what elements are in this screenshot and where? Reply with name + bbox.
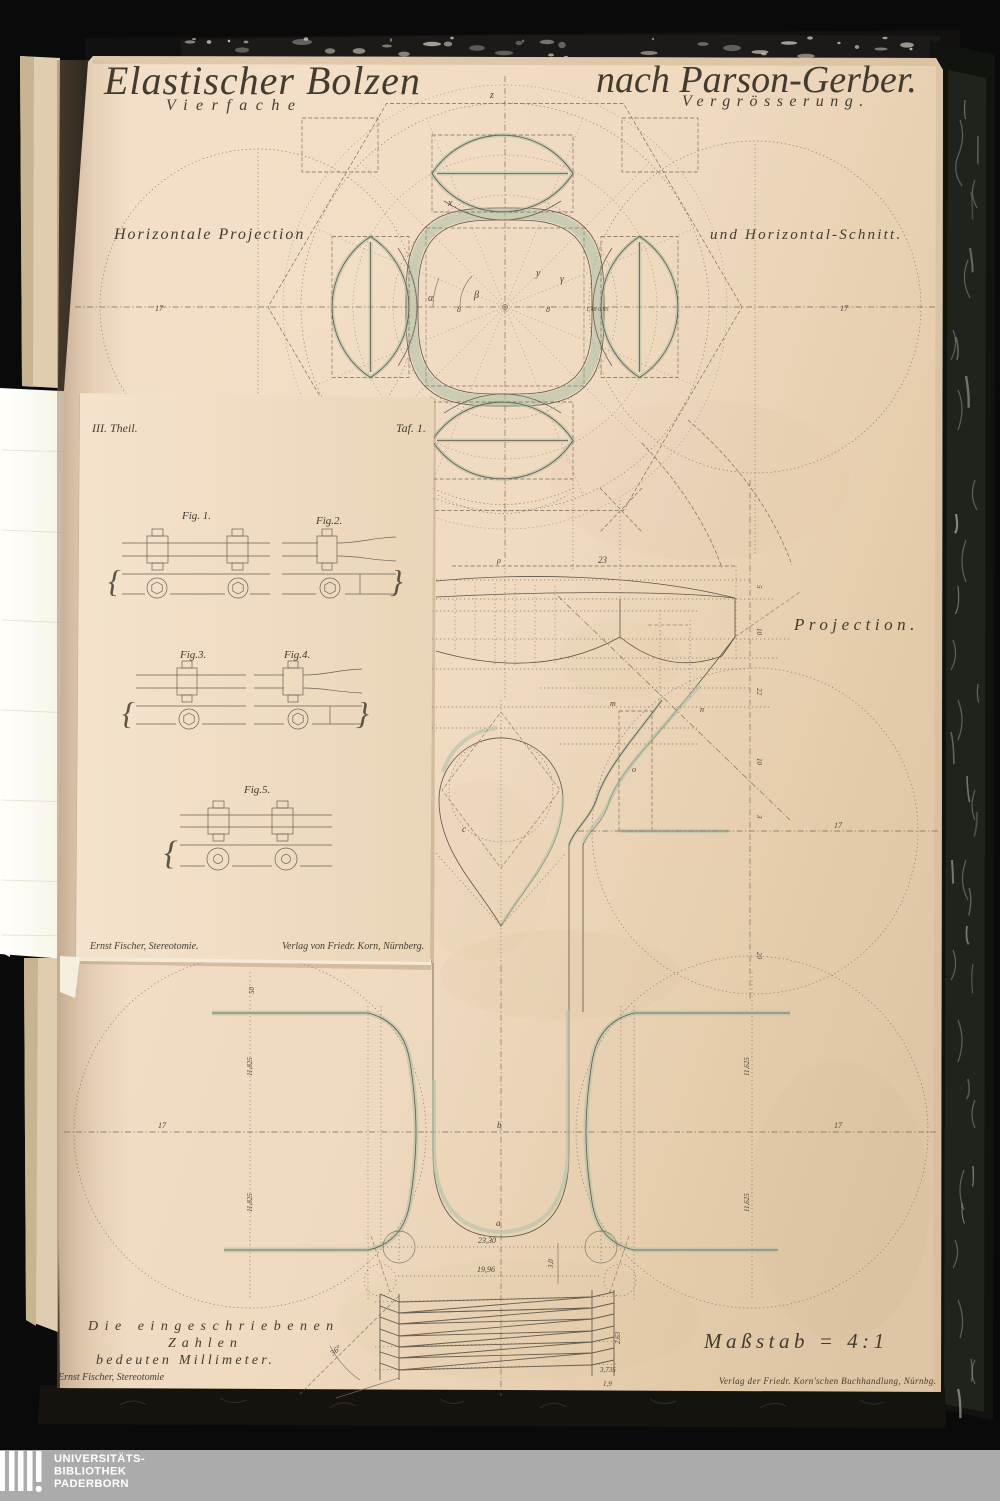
svg-text:11,825: 11,825 — [246, 1057, 254, 1076]
svg-text:Maßstab = 4:1: Maßstab = 4:1 — [703, 1329, 889, 1353]
svg-text:Fig. 1.: Fig. 1. — [181, 510, 211, 522]
svg-text:Ernst Fischer, Stereotomie: Ernst Fischer, Stereotomie — [57, 1372, 165, 1383]
svg-text:{: { — [108, 563, 121, 599]
svg-text:50: 50 — [248, 987, 256, 995]
svg-text:Fig.4.: Fig.4. — [283, 649, 310, 661]
svg-text:BIBLIOTHEK: BIBLIOTHEK — [54, 1466, 126, 1478]
svg-text:Taf. 1.: Taf. 1. — [396, 421, 426, 435]
svg-text:bedeuten Millimeter.: bedeuten Millimeter. — [96, 1353, 275, 1368]
svg-text:y: y — [535, 268, 541, 279]
svg-text:17: 17 — [155, 304, 164, 313]
svg-text:5: 5 — [755, 585, 763, 589]
svg-text:23: 23 — [598, 555, 608, 565]
svg-text:Vierfache: Vierfache — [166, 97, 304, 114]
svg-text:10: 10 — [755, 628, 763, 636]
svg-text:Fig.3.: Fig.3. — [179, 649, 206, 661]
svg-text:17: 17 — [158, 1121, 167, 1130]
svg-text:8: 8 — [457, 305, 461, 314]
svg-text:Projection.: Projection. — [793, 615, 919, 634]
svg-text:}: } — [390, 563, 403, 599]
svg-text:o: o — [632, 765, 636, 774]
svg-text:17: 17 — [834, 1121, 843, 1130]
svg-text:α: α — [428, 293, 434, 304]
svg-text:Fig.2.: Fig.2. — [315, 515, 342, 527]
svg-text:17: 17 — [834, 821, 843, 830]
svg-text:3,735: 3,735 — [599, 1366, 616, 1374]
svg-text:Die eingeschriebenen: Die eingeschriebenen — [87, 1319, 340, 1334]
svg-text:a: a — [496, 1218, 501, 1228]
svg-text:z: z — [489, 90, 494, 101]
svg-text:11,825: 11,825 — [246, 1193, 254, 1212]
svg-text:11,625: 11,625 — [743, 1057, 751, 1076]
svg-text:Verlag der Friedr. Korn'schen: Verlag der Friedr. Korn'schen Buchhandlu… — [719, 1376, 936, 1386]
svg-text:Verlag von Friedr. Korn, Nürnb: Verlag von Friedr. Korn, Nürnberg. — [282, 941, 424, 952]
svg-text:c: c — [462, 824, 466, 834]
svg-text:11,625: 11,625 — [743, 1193, 751, 1212]
svg-text:Ernst Fischer, Stereotomie.: Ernst Fischer, Stereotomie. — [89, 941, 199, 952]
svg-text:22: 22 — [755, 688, 763, 696]
svg-text:UNIVERSITÄTS-: UNIVERSITÄTS- — [54, 1452, 145, 1465]
svg-text:β: β — [473, 290, 479, 301]
svg-text:17: 17 — [840, 304, 849, 313]
svg-text:Vergrösserung.: Vergrösserung. — [682, 93, 870, 110]
svg-text:x: x — [447, 198, 453, 209]
svg-text:Fig.5.: Fig.5. — [243, 784, 270, 796]
svg-text:8: 8 — [546, 305, 550, 314]
svg-text:und Horizontal-Schnitt.: und Horizontal-Schnitt. — [710, 227, 902, 243]
svg-text:m: m — [610, 699, 616, 708]
svg-text:20: 20 — [755, 952, 763, 960]
svg-text:19,96: 19,96 — [477, 1265, 495, 1274]
svg-text:1,9: 1,9 — [603, 1380, 612, 1388]
svg-text:10: 10 — [755, 758, 763, 766]
svg-text:23,30: 23,30 — [478, 1236, 496, 1245]
svg-text:}: } — [356, 695, 369, 731]
svg-text:{: { — [164, 835, 178, 872]
svg-text:Horizontale Projection: Horizontale Projection — [113, 226, 305, 243]
svg-text:PADERBORN: PADERBORN — [54, 1478, 129, 1490]
svg-text:III. Theil.: III. Theil. — [91, 421, 138, 435]
svg-text:2,63: 2,63 — [614, 1331, 622, 1344]
svg-text:ρ: ρ — [496, 556, 501, 565]
svg-text:Zahlen: Zahlen — [168, 1336, 243, 1351]
svg-text:1.48 0.95: 1.48 0.95 — [586, 306, 609, 313]
svg-text:3,0: 3,0 — [547, 1259, 555, 1269]
svg-text:b: b — [497, 1120, 502, 1130]
svg-text:n: n — [700, 705, 704, 714]
svg-text:{: { — [122, 695, 135, 731]
svg-text:3: 3 — [755, 814, 763, 819]
